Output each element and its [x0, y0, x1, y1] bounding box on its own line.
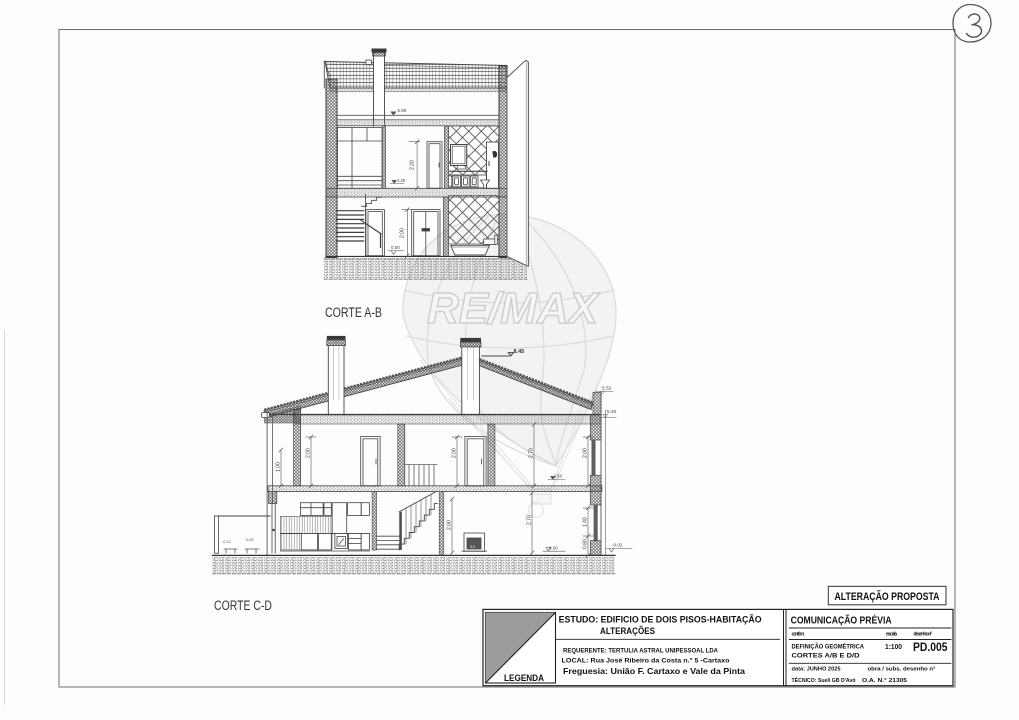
svg-text:CORTE A-B: CORTE A-B [325, 305, 382, 320]
svg-text:-0.12: -0.12 [222, 540, 231, 544]
svg-text:ALTERAÇÃO PROPOSTA: ALTERAÇÃO PROPOSTA [835, 590, 940, 603]
svg-text:data: JUNHO 2025: data: JUNHO 2025 [792, 666, 841, 672]
svg-text:8.45: 8.45 [514, 349, 525, 355]
svg-text:DEFINIÇÃO GEOMÉTRICA: DEFINIÇÃO GEOMÉTRICA [792, 641, 865, 650]
svg-text:5.90: 5.90 [398, 108, 407, 113]
svg-text:0.00: 0.00 [549, 546, 558, 551]
svg-text:0.80: 0.80 [583, 539, 589, 549]
svg-text:ESTUDO: EDIFICIO DE DOIS P: ESTUDO: EDIFICIO DE DOIS PISOS-HABITAÇÃO [559, 615, 762, 625]
svg-text:RE/MAX: RE/MAX [427, 284, 601, 333]
svg-text:LOCAL: Rua José Ribeiro da: LOCAL: Rua José Ribeiro da Costa n.° 5 -… [562, 656, 730, 664]
svg-text:2.00: 2.00 [583, 448, 589, 458]
svg-text:2.00: 2.00 [400, 228, 406, 238]
svg-text:ALTERAÇÕES: ALTERAÇÕES [600, 626, 655, 636]
svg-text:1.40: 1.40 [583, 517, 589, 527]
svg-text:TÉCNICO: Suell GB D'Avó: TÉCNICO: Suell GB D'Avó [792, 676, 857, 684]
svg-text:O.A. N.° 21305: O.A. N.° 21305 [862, 678, 907, 684]
svg-text:obra / subs. desenho n°: obra / subs. desenho n° [868, 666, 936, 672]
svg-text:5.52: 5.52 [602, 386, 612, 392]
svg-text:-0.52: -0.52 [245, 538, 254, 542]
svg-text:2.00: 2.00 [306, 448, 312, 458]
svg-text:desenho n°: desenho n° [913, 632, 932, 638]
svg-text:2.00: 2.00 [452, 448, 458, 458]
svg-text:PD.005: PD.005 [913, 640, 948, 654]
svg-text:COMUNICAÇÃO PRÉVIA: COMUNICAÇÃO PRÉVIA [791, 613, 892, 626]
svg-text:escala: escala [886, 632, 897, 638]
svg-text:2.50: 2.50 [554, 474, 563, 479]
svg-text:1.00: 1.00 [276, 462, 282, 472]
svg-text:2.00: 2.00 [447, 520, 453, 530]
svg-text:CORTES A/B E D/D: CORTES A/B E D/D [792, 652, 860, 659]
svg-text:REQUERENTE: TERTULIA ASTRAL: REQUERENTE: TERTULIA ASTRAL UNIPESSOAL L… [563, 647, 718, 654]
svg-text:1:100: 1:100 [885, 644, 902, 651]
svg-text:3.0: 3.0 [470, 545, 475, 549]
svg-text:contém:: contém: [792, 632, 805, 638]
svg-text:2.20: 2.20 [397, 178, 406, 183]
svg-text:2.70: 2.70 [529, 448, 535, 458]
svg-text:0.00: 0.00 [391, 245, 400, 250]
svg-text:CORTE C-D: CORTE C-D [214, 598, 272, 613]
svg-text:2.70: 2.70 [527, 515, 533, 525]
svg-text:Freguesia: União F. Cartaxo: Freguesia: União F. Cartaxo e Vale da Pi… [563, 666, 745, 676]
svg-text:-0.02: -0.02 [612, 543, 623, 548]
svg-text:2.20: 2.20 [410, 160, 416, 170]
svg-text:LEGENDA: LEGENDA [504, 673, 544, 684]
svg-text:5.40: 5.40 [607, 409, 617, 415]
